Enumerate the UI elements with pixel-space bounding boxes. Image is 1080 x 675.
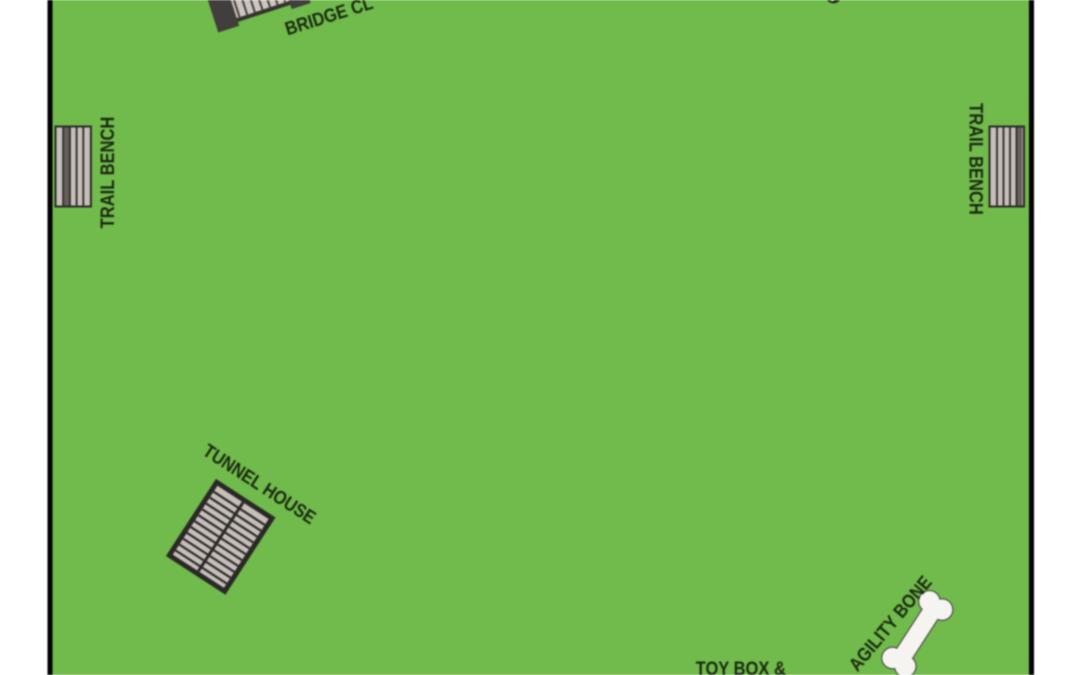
svg-text:TRAIL BENCH: TRAIL BENCH <box>965 103 986 215</box>
svg-text:TOY BOX &: TOY BOX & <box>696 658 786 675</box>
svg-text:TRAIL BENCH: TRAIL BENCH <box>97 117 118 229</box>
